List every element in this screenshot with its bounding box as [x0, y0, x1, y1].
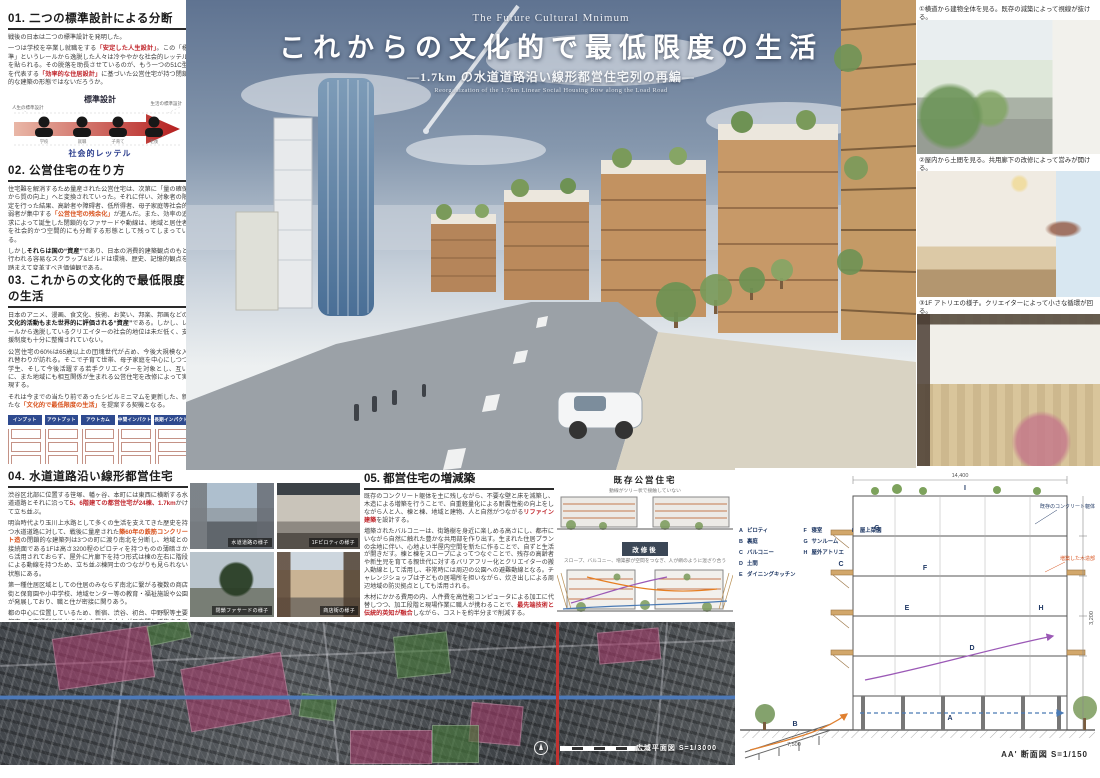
svg-text:B: B: [792, 721, 797, 728]
water-road-route-line: [0, 696, 735, 699]
glass-tower: [318, 78, 374, 316]
room-letters: A B C D E F G H I: [792, 485, 1043, 728]
legend-item: Eダイニングキッチン: [739, 570, 796, 578]
map-overlay-facility: [52, 626, 155, 691]
existing-elevation-diagram: [557, 494, 733, 534]
white-tower: [274, 118, 312, 308]
section-04: 04. 水道道路沿い線形都営住宅 渋谷区北部に位置する笹塚、幡ヶ谷、本町には東西…: [8, 468, 188, 620]
photo-caption: 商店街の様子: [320, 606, 358, 615]
svg-text:A: A: [947, 715, 952, 722]
section-04-paragraph: 渋谷区北部に位置する笹塚、幡ヶ谷、本町には東西に横断する水道道路とそれに沿って5…: [8, 492, 188, 517]
life-standard-label: 人生の標準設計: [12, 104, 44, 111]
map-overlay-facility: [180, 652, 292, 733]
section-03-title: 03. これからの文化的で最低限度の生活: [8, 272, 188, 308]
section-01: 01. 二つの標準設計による分断 戦後の日本は二つの標準設計を発明した。 一つは…: [8, 10, 188, 160]
site-photo-grid: 水道道路の様子 1Fピロティの様子 閉鎖ファサードの様子 商店街の様子: [190, 483, 360, 617]
section-04-paragraph: 明治時代より玉川上水路として多くの生活を支えてきた歴史を持つ水道道路に対して、戦…: [8, 520, 188, 579]
section-02-paragraph: 住宅難を解消するため量産された公営住宅は、次第に「量の確保から質の向上」へと変換…: [8, 186, 188, 245]
map-overlay-park: [146, 622, 191, 646]
chip-outcome: アウトカム: [81, 415, 115, 425]
after-renovation-badge: 改修後: [622, 542, 668, 556]
legend-item: Cバルコニー: [739, 548, 796, 556]
svg-text:E: E: [905, 605, 910, 612]
annotations: 既存のコンクリート躯体 増築した木造部: [1035, 503, 1095, 572]
living-standard-label: 生活の標準設計: [151, 100, 183, 107]
social-label: 社会的レッテル: [68, 148, 132, 158]
legend-item: D土間: [739, 559, 796, 567]
section-01-title: 01. 二つの標準設計による分断: [8, 10, 188, 30]
section-drawing-caption: AA' 断面図 S=1/150: [1001, 749, 1088, 760]
svg-text:学校: 学校: [40, 138, 49, 145]
chip-mid-impact: 中間インパクト: [118, 415, 152, 425]
stage-labels: 学校 就職 子育て 老後: [40, 138, 159, 145]
legend-item: I屋上菜園: [852, 526, 882, 534]
section-drawing-panel: A B C D E F G H I 既存のコンクリート躯体 増築した木造部: [735, 468, 1100, 770]
render-view-interior: [917, 171, 1100, 297]
site-photo: 商店街の様子: [277, 552, 361, 618]
roof-garden-plants: [871, 484, 1041, 495]
hero-subtitle: —1.7km の水道道路沿い線形都営住宅列の再編—: [186, 68, 916, 85]
hero-eyebrow: The Future Cultural Mnimum: [186, 12, 916, 24]
existing-housing-subtitle: 動線がツリー状で接触していない: [557, 487, 733, 494]
existing-housing-title: 既存公営住宅: [557, 474, 733, 486]
chip-output: アウトプット: [45, 415, 79, 425]
section-03-paragraph: 公営住宅の60%は65歳以上の団塊世代が占め、今後大規模な入れ替わりが訪れる。そ…: [8, 349, 188, 391]
map-overlay-facility: [350, 730, 432, 764]
north-arrow-icon: [534, 741, 548, 755]
site-photo: 1Fピロティの様子: [277, 483, 361, 549]
map-overlay-park: [432, 725, 479, 763]
standard-design-diagram: 標準設計 人生の標準設計 生活の標準設計 学校 就職 子育て 老後 社会的レッテ…: [8, 91, 186, 160]
render-view-atelier: [917, 314, 1100, 466]
svg-text:14,400: 14,400: [952, 473, 969, 479]
diagram-title: 標準設計: [84, 94, 116, 104]
section-05-paragraph: 木材にかかる費用の内、人件費を高性能コンピュータによる加工に代替しつつ、加工段階…: [364, 594, 554, 618]
section-05-paragraph: 既存のコンクリート躯体を主に残しながら、不要な壁と床を減築し、木造による増築を行…: [364, 493, 554, 525]
svg-text:H: H: [1038, 605, 1043, 612]
legend-item: Aピロティ: [739, 526, 796, 534]
logic-model-boxes: [8, 429, 188, 464]
renovated-elevation-diagram: [557, 565, 733, 615]
dimensions: [853, 476, 1087, 730]
section-05: 05. 都営住宅の増減築 既存のコンクリート躯体を主に残しながら、不要な壁と床を…: [364, 470, 554, 620]
section-01-paragraph: 戦後の日本は二つの標準設計を発明した。: [8, 34, 188, 42]
legend-item: B裏庭: [739, 537, 796, 545]
svg-text:既存のコンクリート躯体: 既存のコンクリート躯体: [1040, 503, 1095, 510]
svg-text:就職: 就職: [78, 138, 87, 145]
svg-text:I: I: [964, 485, 966, 492]
map-overlay-facility: [597, 627, 662, 664]
site-photo: 水道道路の様子: [190, 483, 274, 549]
section-04-title: 04. 水道道路沿い線形都営住宅: [8, 468, 188, 488]
photo-caption: 1Fピロティの様子: [309, 538, 358, 547]
section-02: 02. 公営住宅の在り方 住宅難を解消するため量産された公営住宅は、次第に「量の…: [8, 162, 188, 270]
legend-item: Gサンルーム: [804, 537, 844, 545]
svg-text:7,500: 7,500: [787, 742, 801, 748]
legend-item: H屋外アトリエ: [804, 548, 844, 556]
logic-model-headers: インプット アウトプット アウトカム 中間インパクト 長期インパクト: [8, 415, 188, 425]
legend-item: F寝室: [804, 526, 844, 534]
svg-text:老後: 老後: [150, 138, 159, 144]
section-cut-line: [556, 622, 559, 765]
logic-model-diagram: インプット アウトプット アウトカム 中間インパクト 長期インパクト: [8, 415, 188, 464]
section-03-paragraph: 日本のアニメ、漫画、食文化、技術、お笑い、邦楽、邦画などの文化的活動もまた世界的…: [8, 312, 188, 346]
hero-perspective-rendering: The Future Cultural Mnimum これからの文化的で最低限度…: [186, 0, 916, 470]
render-view-street: [917, 20, 1100, 154]
aerial-site-map: 広域平面図 S=1/3000: [0, 622, 735, 765]
hero-title: これからの文化的で最低限度の生活: [186, 26, 916, 65]
map-overlay-park: [393, 631, 451, 678]
section-03: 03. これからの文化的で最低限度の生活 日本のアニメ、漫画、食文化、技術、お笑…: [8, 272, 188, 464]
map-caption: 広域平面図 S=1/3000: [636, 743, 717, 753]
svg-text:増築した木造部: 増築した木造部: [1060, 555, 1095, 562]
hero-subtitle-en: Reorganization of the 1.7km Linear Socia…: [186, 87, 916, 94]
photo-caption: 閉鎖ファサードの様子: [212, 606, 271, 615]
section-04-paragraph: 第一種住居区域としての住居のみならず南北に繋がる複数の商店街と保育園や小中学校、…: [8, 582, 188, 607]
section-02-title: 02. 公営住宅の在り方: [8, 162, 188, 182]
small-building: [236, 212, 278, 310]
chip-long-impact: 長期インパクト: [154, 415, 188, 425]
section-03-paragraph: それは今までの当たり前であったシビルミニマムを更新した、新たな「文化的で最低限度…: [8, 394, 188, 411]
section-05-paragraph: 増築されたバルコニーは、街路樹を身近に楽しめる高さにし、都市にいながら自然に触れ…: [364, 528, 554, 591]
building-section-drawing: A B C D E F G H I 既存のコンクリート躯体 増築した木造部: [735, 468, 1100, 770]
presentation-board: 01. 二つの標準設計による分断 戦後の日本は二つの標準設計を発明した。 一つは…: [0, 0, 1100, 778]
section-04-paragraph: 都の中心に位置しているため、新宿、渋谷、初台、中野駅等主要都市への交通利便性から…: [8, 610, 188, 620]
svg-text:子育て: 子育て: [112, 138, 125, 145]
svg-text:D: D: [969, 645, 974, 652]
chip-input: インプット: [8, 415, 42, 425]
room-legend: Aピロティ B裏庭 Cバルコニー D土間 Eダイニングキッチン F寝室 Gサンル…: [739, 526, 881, 578]
svg-text:3,200: 3,200: [1089, 611, 1095, 625]
svg-text:F: F: [923, 565, 928, 572]
map-road: [323, 622, 340, 764]
site-photo: 閉鎖ファサードの様子: [190, 552, 274, 618]
photo-caption: 水道道路の様子: [228, 538, 271, 547]
section-02-paragraph: しかしそれらは国の“資産”であり、日本の消費的建築観点のもと行われる容易なスクラ…: [8, 248, 188, 270]
section-01-paragraph: 一つは学校を卒業し就職をする「安定した人生設計」。この「標準」というレールから逸…: [8, 45, 188, 87]
hero-title-block: The Future Cultural Mnimum これからの文化的で最低限度…: [186, 12, 916, 94]
section-05-title: 05. 都営住宅の増減築: [364, 470, 554, 490]
before-after-diagrams: 既存公営住宅 動線がツリー状で接触していない 改修後 スロープ、バルコニー、増築…: [557, 474, 733, 620]
